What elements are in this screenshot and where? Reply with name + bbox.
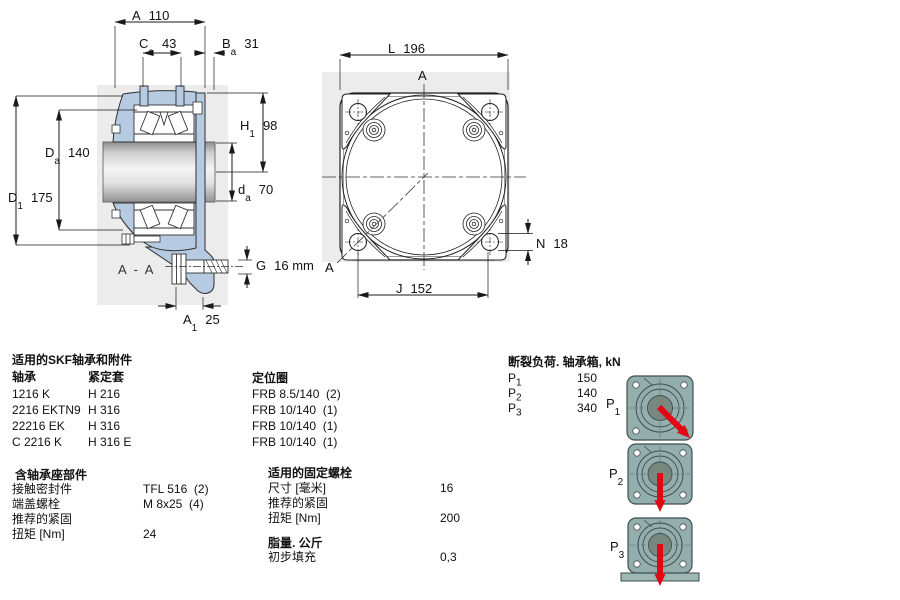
dim-label-J: J152: [396, 281, 432, 296]
dim-label-H1: H198: [240, 118, 277, 137]
table-row: 接触密封件TFL 516 (2): [12, 482, 209, 497]
dim-label-Da: Da140: [45, 145, 90, 164]
col-header-bearing: 轴承: [12, 369, 88, 385]
table-title-grease: 脂量. 公斤: [268, 534, 323, 551]
table-row: 扭矩 [Nm]200: [268, 511, 460, 526]
section-marker-top: A: [418, 68, 427, 83]
table-row: 推荐的紧固: [268, 496, 460, 511]
dim-label-da: da70: [238, 182, 273, 201]
table-row: P2140: [508, 386, 597, 401]
table-row: 2216 EKTN9H 316: [12, 402, 131, 418]
section-label: A - A: [118, 262, 155, 277]
dim-label-A1: A125: [183, 312, 220, 331]
section-marker-bottom: A: [325, 260, 334, 275]
page: A110 Ca43 Ba31 H198 Da140 da70 D1175 G16…: [0, 0, 900, 600]
table-row: FRB 10/140 (1): [252, 402, 341, 418]
bearing-section-upper: [134, 105, 194, 142]
table-bearings-header: 轴承紧定套: [12, 369, 124, 385]
load-figure-label-p1: P1: [606, 396, 620, 415]
dim-label-Ba: Ba31: [222, 36, 259, 55]
flange-view-drawing: [315, 35, 575, 315]
load-figure-p2: [628, 444, 692, 512]
load-figure-p1: [627, 376, 693, 440]
table-row: 扭矩 [Nm]24: [12, 527, 209, 542]
load-figure-label-p2: P2: [609, 466, 623, 485]
dim-label-A: A110: [132, 8, 169, 27]
dim-label-L: L196: [388, 41, 425, 56]
table-row: FRB 10/140 (1): [252, 418, 341, 434]
table-row: FRB 8.5/140 (2): [252, 386, 341, 402]
table-grease: 初步填充0,3: [268, 550, 457, 565]
table-row: P1150: [508, 371, 597, 386]
table-row: FRB 10/140 (1): [252, 434, 341, 450]
table-row: 端盖螺栓M 8x25 (4): [12, 497, 209, 512]
dim-label-G: G16 mm: [256, 258, 314, 273]
table-row: 初步填充0,3: [268, 550, 457, 565]
table-title-locating-rings: 定位圈: [252, 369, 288, 386]
table-title-bearings: 适用的SKF轴承和附件: [12, 351, 132, 368]
col-header-sleeve: 紧定套: [88, 369, 124, 385]
load-figure-label-p3: P3: [610, 539, 624, 558]
table-row: C 2216 KH 316 E: [12, 434, 131, 450]
table-row: 尺寸 [毫米]16: [268, 481, 460, 496]
bearing-section-lower: [134, 203, 194, 235]
dim-label-N: N18: [536, 236, 568, 251]
table-housing-parts: 接触密封件TFL 516 (2) 端盖螺栓M 8x25 (4) 推荐的紧固 扭矩…: [12, 482, 209, 542]
table-row: P3340: [508, 401, 597, 416]
table-title-housing-parts: 含轴承座部件: [15, 466, 87, 483]
table-breaking-loads: P1150 P2140 P3340: [508, 371, 597, 416]
dim-label-D1: D1175: [8, 190, 53, 209]
load-figure-p3: [621, 518, 699, 586]
table-row: 22216 EKH 316: [12, 418, 131, 434]
dim-label-Ca: Ca43: [139, 36, 176, 55]
table-row: 推荐的紧固: [12, 512, 209, 527]
table-locating-rings: FRB 8.5/140 (2) FRB 10/140 (1) FRB 10/14…: [252, 386, 341, 450]
table-title-attachment-bolts: 适用的固定螺栓: [268, 464, 352, 481]
table-attachment-bolts: 尺寸 [毫米]16 推荐的紧固 扭矩 [Nm]200: [268, 481, 460, 526]
table-bearings: 1216 KH 216 2216 EKTN9H 316 22216 EKH 31…: [12, 386, 131, 450]
table-row: 1216 KH 216: [12, 386, 131, 402]
